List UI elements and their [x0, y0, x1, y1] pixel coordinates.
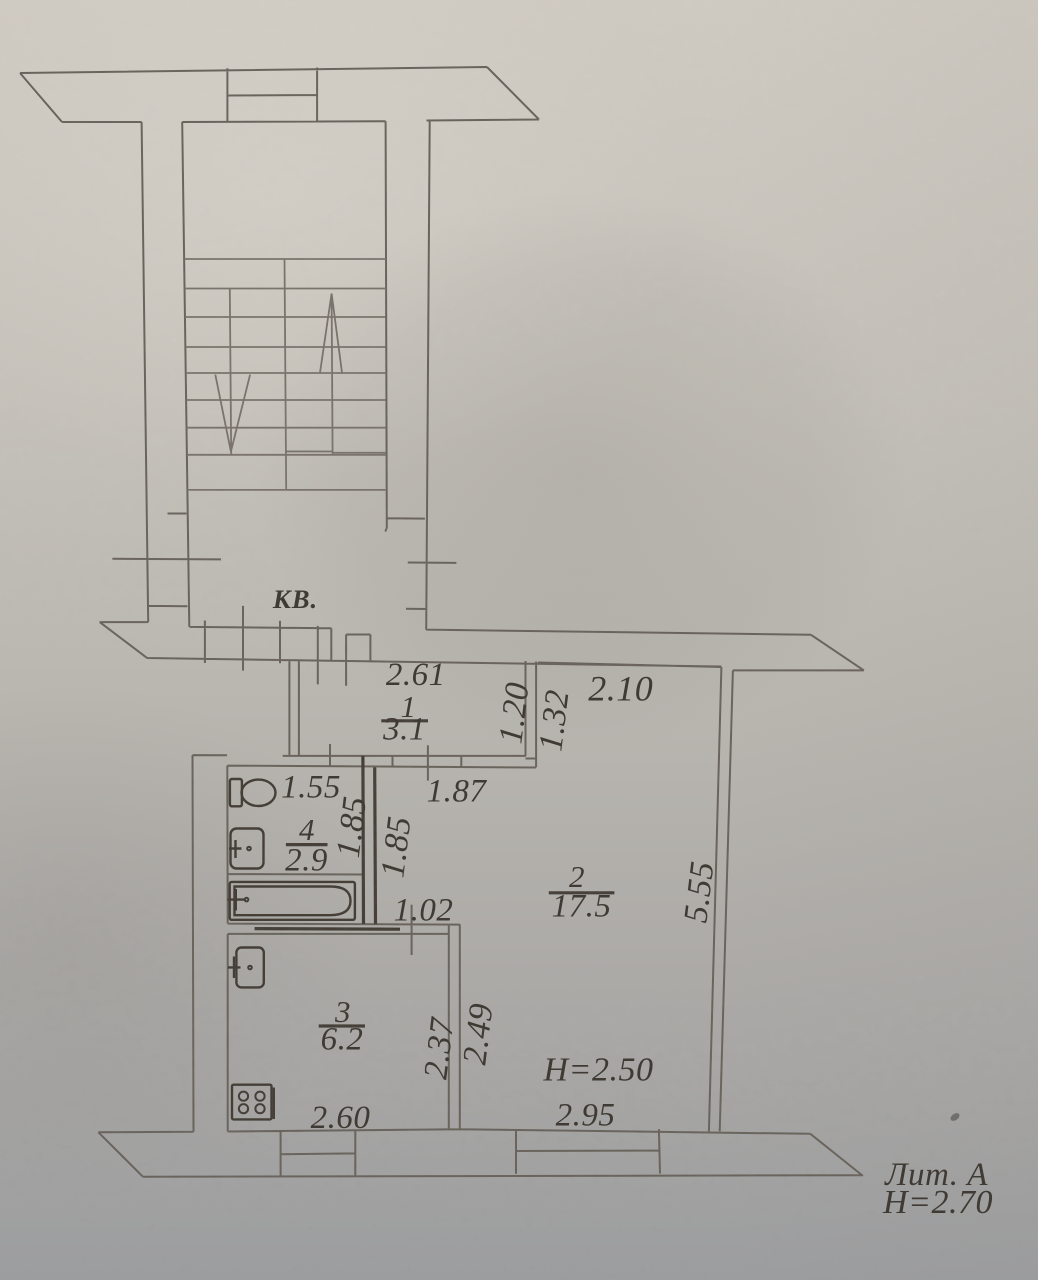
svg-text:1.02: 1.02	[394, 893, 454, 929]
svg-text:H=2.50: H=2.50	[543, 1052, 654, 1089]
svg-text:2.10: 2.10	[588, 669, 653, 709]
svg-text:5.55: 5.55	[677, 859, 721, 925]
svg-text:1.87: 1.87	[427, 774, 488, 810]
svg-text:1.85: 1.85	[330, 794, 374, 860]
svg-text:1.32: 1.32	[532, 688, 576, 754]
svg-text:Н=2.70: Н=2.70	[882, 1184, 993, 1221]
svg-text:3.1: 3.1	[382, 712, 426, 748]
svg-text:17.5: 17.5	[552, 889, 612, 925]
svg-text:2.37: 2.37	[417, 1014, 461, 1081]
svg-text:2.61: 2.61	[386, 657, 446, 693]
svg-text:2.95: 2.95	[556, 1098, 616, 1134]
svg-text:2.60: 2.60	[311, 1100, 371, 1136]
svg-text:6.2: 6.2	[321, 1022, 364, 1058]
svg-text:1.85: 1.85	[374, 814, 418, 880]
svg-text:1.20: 1.20	[492, 680, 536, 746]
svg-text:1.55: 1.55	[281, 770, 341, 806]
svg-text:2.9: 2.9	[285, 843, 328, 879]
svg-text:КВ.: КВ.	[272, 584, 318, 614]
svg-text:2.49: 2.49	[456, 1001, 500, 1067]
